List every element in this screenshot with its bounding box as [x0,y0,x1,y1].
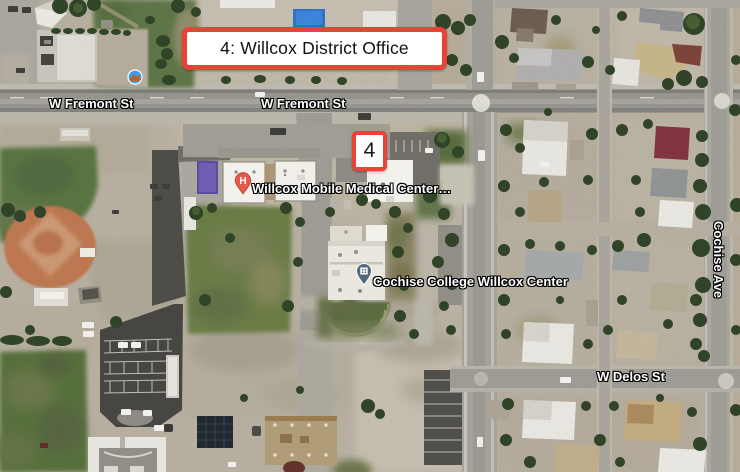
svg-text:H: H [239,176,246,187]
